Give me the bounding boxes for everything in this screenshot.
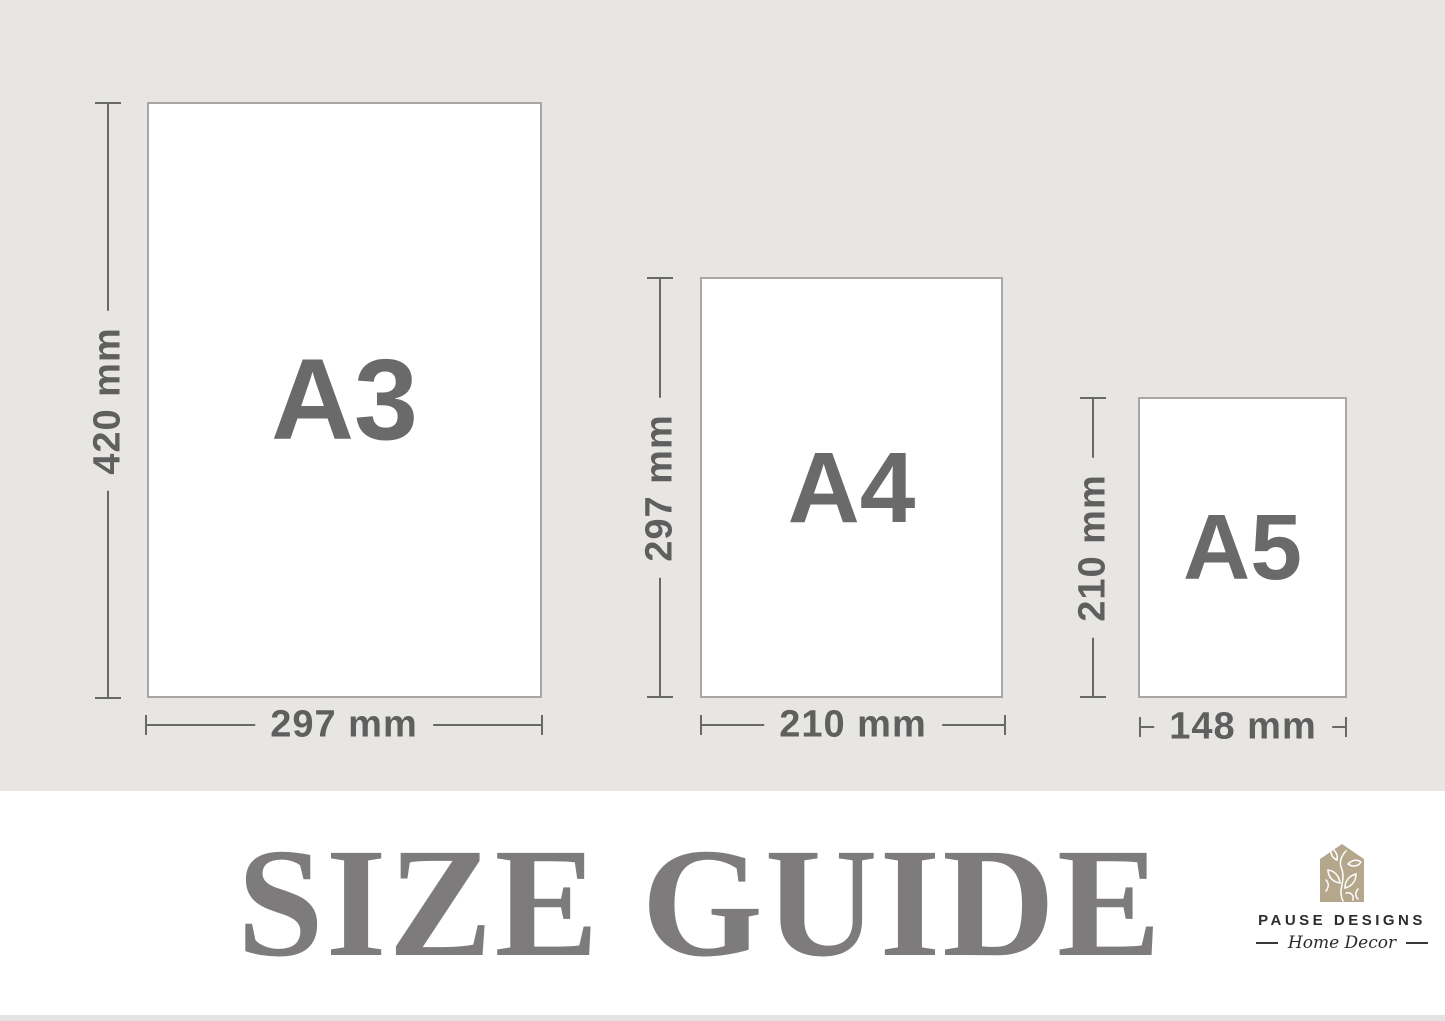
dimension-tick — [1345, 717, 1347, 737]
floral-house-icon — [1319, 843, 1365, 903]
brand-tagline: Home Decor — [1288, 933, 1396, 953]
dimension-tick — [700, 715, 702, 735]
tagline-dash-left — [1256, 942, 1278, 944]
bottom-strip — [0, 1015, 1445, 1021]
paper-a5-label: A5 — [1183, 501, 1302, 594]
dimension-tick — [541, 715, 543, 735]
dimension-tick — [145, 715, 147, 735]
brand-name: PAUSE DESIGNS — [1258, 912, 1426, 929]
dimension-tick — [647, 277, 673, 279]
dimension-tick — [647, 696, 673, 698]
dimension-tick — [95, 102, 121, 104]
dimension-tick — [1080, 696, 1106, 698]
a5-width-dimension: 148 mm — [1139, 717, 1347, 737]
paper-a4-label: A4 — [788, 438, 916, 538]
a4-height-label: 297 mm — [639, 398, 682, 578]
a3-height-label: 420 mm — [87, 311, 130, 491]
tagline-dash-right — [1406, 942, 1428, 944]
title-banner: SIZE GUIDE PAUSE DESIGNS Home Decor — [0, 791, 1445, 1015]
a4-width-label: 210 mm — [764, 704, 942, 747]
brand-tagline-row: Home Decor — [1256, 933, 1428, 953]
paper-a4: A4 — [700, 277, 1003, 698]
a5-height-dimension: 210 mm — [1080, 397, 1106, 698]
a3-height-dimension: 420 mm — [95, 102, 121, 699]
paper-a3: A3 — [147, 102, 542, 698]
a4-height-dimension: 297 mm — [647, 277, 673, 698]
a4-width-dimension: 210 mm — [700, 715, 1006, 735]
dimension-tick — [95, 697, 121, 699]
page-title: SIZE GUIDE — [0, 825, 1400, 981]
paper-a5: A5 — [1138, 397, 1347, 698]
dimension-tick — [1139, 717, 1141, 737]
a5-height-label: 210 mm — [1072, 458, 1115, 638]
dimension-tick — [1004, 715, 1006, 735]
brand-logo: PAUSE DESIGNS Home Decor — [1242, 843, 1442, 953]
size-guide-page: A3 420 mm 297 mm A4 297 mm 210 mm A5 210… — [0, 0, 1445, 1021]
a5-width-label: 148 mm — [1154, 706, 1332, 749]
a3-width-dimension: 297 mm — [145, 715, 543, 735]
paper-a3-label: A3 — [271, 343, 418, 458]
dimension-tick — [1080, 397, 1106, 399]
a3-width-label: 297 mm — [255, 704, 433, 747]
